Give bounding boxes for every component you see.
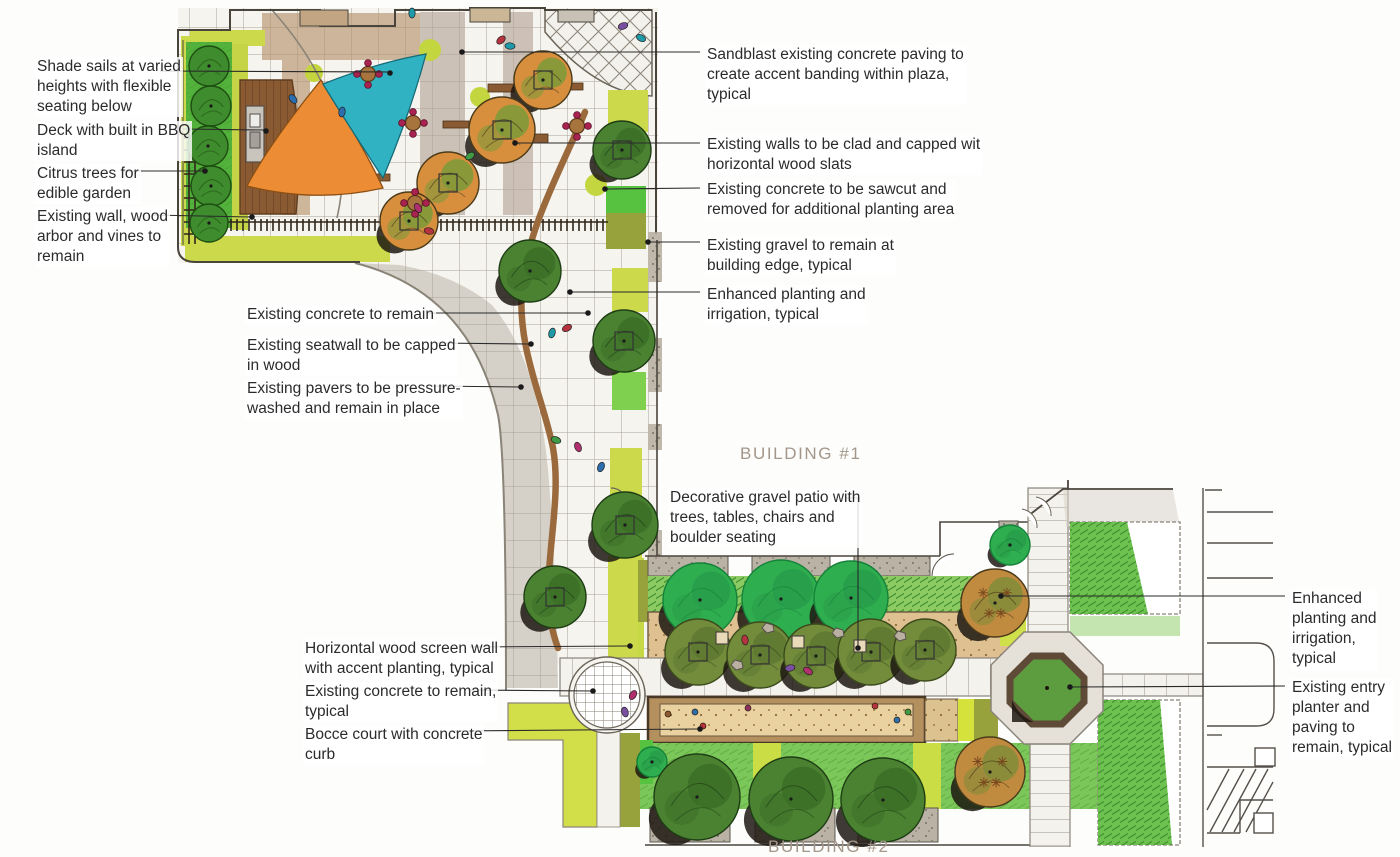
callout-existing-pavers: Existing pavers to be pressure- washed a… [245, 379, 463, 419]
tree-symbol [988, 525, 1030, 567]
callout-sawcut: Existing concrete to be sawcut and remov… [705, 180, 956, 220]
callout-wood-screen-wall: Horizontal wood screen wall with accent … [303, 639, 500, 679]
building-1-label: BUILDING #1 [740, 444, 862, 464]
callout-deck-bbq: Deck with built in BBQ island [35, 121, 192, 161]
road-markings [1203, 488, 1275, 847]
entry-plaza-octagon [991, 632, 1103, 744]
patio-table [854, 640, 866, 652]
callout-walls-clad: Existing walls to be clad and capped wit… [705, 135, 982, 175]
callout-existing-wall-arbor: Existing wall, wood arbor and vines to r… [35, 207, 170, 267]
bocce-ball [894, 717, 900, 723]
bocce-ball [872, 703, 878, 709]
bocce-ball [665, 711, 671, 717]
callout-decorative-gravel: Decorative gravel patio with trees, tabl… [668, 488, 862, 548]
tree-symbol [189, 46, 229, 86]
bocce-court-shape [648, 697, 998, 743]
callout-existing-concrete: Existing concrete to remain [245, 305, 436, 325]
entry-area [991, 480, 1275, 847]
callout-existing-seatwall: Existing seatwall to be capped in wood [245, 336, 458, 376]
tree-symbol [190, 204, 228, 242]
tree-symbol [191, 166, 231, 206]
landscape-plan-page: { "drawing": { "type": "landscape-archit… [0, 0, 1400, 847]
callout-gravel-edge: Existing gravel to remain at building ed… [705, 236, 896, 276]
bbq-island [246, 106, 264, 162]
building-2-label: BUILDING #2 [768, 837, 890, 857]
callout-enhanced-planting-1: Enhanced planting and irrigation, typica… [705, 285, 868, 325]
person-symbol [409, 8, 415, 18]
callout-sandblast: Sandblast existing concrete paving to cr… [705, 45, 966, 105]
site-plan-svg [0, 0, 1400, 847]
tree-symbol [191, 86, 231, 126]
callout-enhanced-planting-2: Enhanced planting and irrigation, typica… [1290, 589, 1378, 670]
callout-shade-sails: Shade sails at varied heights with flexi… [35, 57, 183, 117]
bocce-ball [745, 705, 751, 711]
patio-table [716, 632, 728, 644]
callout-entry-planter: Existing entry planter and paving to rem… [1290, 678, 1394, 759]
patio-table [792, 636, 804, 648]
bocce-ball [692, 709, 698, 715]
callout-existing-concrete-typical: Existing concrete to remain, typical [303, 682, 498, 722]
callout-bocce-court: Bocce court with concrete curb [303, 725, 484, 765]
bocce-ball [905, 709, 911, 715]
callout-citrus-trees: Citrus trees for edible garden [35, 164, 141, 204]
tree-symbol [188, 126, 228, 166]
